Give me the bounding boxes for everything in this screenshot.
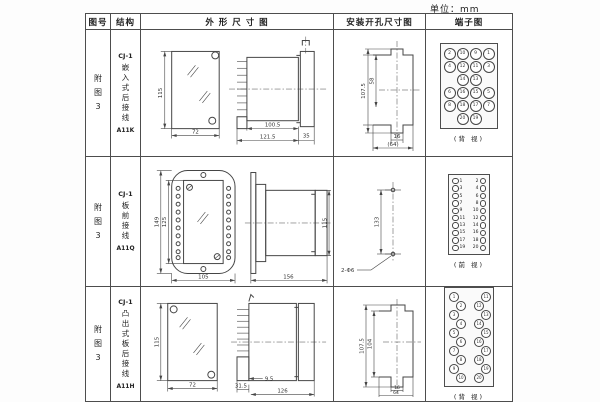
dim-mount-v1: 133 (374, 216, 380, 227)
terminal: 1516 (451, 229, 487, 236)
terminal: 5 (449, 328, 459, 338)
terminal: 7 (483, 100, 495, 112)
row-a11h: 附图3 CJ-1 凸出式板后接线 A11H 115 72 (86, 287, 513, 402)
terminal (480, 245, 487, 252)
char: 板 (122, 339, 130, 349)
terminal: 13 (460, 223, 469, 228)
terminal: 1314 (451, 222, 487, 229)
terminal-caption: (前 视) (454, 259, 484, 269)
terminal: 818177 (443, 99, 495, 112)
terminal: 13 (481, 310, 491, 320)
terminal: 6 (456, 337, 466, 347)
char: 后 (122, 349, 130, 359)
structure-chars: 凸出式板后接线 (122, 309, 130, 379)
char: 附 (86, 72, 110, 86)
terminal: 3 (460, 186, 469, 191)
char: 入 (122, 73, 130, 83)
dim-mount-b2: 64 (393, 390, 399, 396)
terminal: 1234567891011121314151617181920 (447, 291, 491, 383)
terminal: 9 (449, 364, 459, 374)
terminal-diagram: 2109141211314136161558181772019 (背 视) (426, 43, 512, 143)
terminal: 12 (457, 61, 469, 73)
terminal (452, 215, 459, 222)
terminal (480, 215, 487, 222)
char: 图 (86, 337, 110, 351)
terminal: 12 (474, 301, 484, 311)
terminal (480, 237, 487, 244)
page: { "page": { "unit_label": "单位：mm" }, "ta… (0, 0, 600, 400)
dim-side-l: 156 (283, 274, 294, 280)
structure-model: CJ-1 (118, 189, 132, 199)
terminal (480, 193, 487, 200)
terminal-cell-a11q: 1234567891011121314151617181920 (前 视) (426, 157, 513, 287)
mount-svg-a11h: 107.5 104 16 64 (335, 291, 425, 398)
outline-svg-a11h: 115 72 9.5 (142, 291, 333, 398)
terminal: 8 (444, 100, 456, 112)
terminal: 1920 (451, 244, 487, 251)
terminal (480, 178, 487, 185)
dim-front-w: 72 (189, 382, 196, 388)
terminal: 19 (470, 113, 482, 125)
terminal: 16 (457, 87, 469, 99)
terminal-diagram: 1234567891011121314151617181920 (背 视) (426, 287, 512, 401)
terminal: 15 (481, 328, 491, 338)
terminal: 14 (470, 223, 479, 228)
terminal: 1 (449, 292, 459, 302)
dim-mount-b1: 16 (393, 134, 400, 140)
outline-svg-a11q: 149 125 105 156 (142, 158, 333, 286)
terminal (480, 208, 487, 215)
dim-d2: 121.5 (259, 134, 275, 140)
terminal: 10 (470, 208, 479, 213)
char: 3 (86, 229, 110, 243)
terminal: 4 (456, 319, 466, 329)
terminal: 6 (444, 87, 456, 99)
char: 接 (122, 359, 130, 369)
terminal: 18 (457, 100, 469, 112)
terminal: 20 (457, 113, 469, 125)
terminal: 4 (444, 61, 456, 73)
char: 式 (122, 329, 130, 339)
terminal (452, 185, 459, 192)
spec-table: 图号 结构 外 形 尺 寸 图 安装开孔尺寸图 端子图 附图3 CJ-1 嵌入式… (85, 13, 513, 402)
dim-d3: 126 (277, 388, 288, 394)
terminal: 11 (460, 216, 469, 221)
terminal: 17 (470, 100, 482, 112)
terminal: 16 (470, 230, 479, 235)
mount-drawing-a11k: 107.5 58 16 (64) (334, 30, 426, 157)
terminal (452, 208, 459, 215)
header-mount-dims: 安装开孔尺寸图 (334, 14, 426, 30)
char: 附 (86, 201, 110, 215)
terminal (480, 185, 487, 192)
terminal: 34 (451, 185, 487, 192)
terminal: 616155 (443, 86, 495, 99)
terminal: 21091 (443, 47, 495, 60)
header-terminal: 端子图 (426, 14, 513, 30)
char: 附 (86, 323, 110, 337)
structure-chars: 板前接线 (122, 201, 130, 241)
terminal: 8 (470, 201, 479, 206)
row-a11q: 附图3 CJ-1 板前接线 A11Q (86, 157, 513, 287)
terminal: 910 (451, 207, 487, 214)
fig-no-a11q: 附图3 (86, 157, 111, 287)
terminal: 16 (474, 337, 484, 347)
terminal (452, 245, 459, 252)
terminal-grid: 2109141211314136161558181772019 (440, 43, 498, 129)
dim-d1: 100.5 (264, 122, 280, 128)
structure-stack: CJ-1 嵌入式后接线 A11K (111, 51, 140, 136)
char: 式 (122, 83, 130, 93)
terminal: 12 (451, 178, 487, 185)
mount-drawing-a11q: 133 2-Φ6 (334, 157, 426, 287)
terminal: 1 (483, 48, 495, 60)
hole-spec-label: 2-Φ6 (341, 268, 355, 274)
terminal: 7 (449, 346, 459, 356)
terminal: 11121314151617181920 (474, 292, 489, 382)
dim-side-h: 115 (322, 217, 328, 227)
char: 凸 (122, 309, 130, 319)
terminal: 11 (470, 61, 482, 73)
terminal: 1718 (451, 237, 487, 244)
terminal (452, 230, 459, 237)
terminal: 2 (444, 48, 456, 60)
row-a11k: 附图3 CJ-1 嵌入式后接线 A11K 115 (86, 30, 513, 157)
char: 图 (86, 86, 110, 100)
terminal-diagram: 1234567891011121314151617181920 (前 视) (426, 174, 512, 270)
char: 接 (122, 221, 130, 231)
outline-drawing-a11h: 115 72 9.5 (141, 287, 334, 402)
terminal: 3 (449, 310, 459, 320)
mount-drawing-a11h: 107.5 104 16 64 (334, 287, 426, 402)
dim-front-h: 115 (154, 336, 160, 346)
dim-mount-v1: 107.5 (359, 337, 365, 353)
terminal-grid: 1234567891011121314151617181920 (444, 287, 494, 387)
terminal: 10 (456, 373, 466, 383)
terminal: 13 (470, 74, 482, 86)
terminal-caption: (背 视) (454, 133, 484, 143)
terminal (452, 200, 459, 207)
header-outline-dims: 外 形 尺 寸 图 (141, 14, 334, 30)
terminal (452, 193, 459, 200)
dim-mount-v1: 107.5 (361, 82, 367, 98)
char: 3 (86, 100, 110, 114)
structure-model: CJ-1 (118, 51, 132, 61)
terminal: 18 (470, 238, 479, 243)
terminal: 20 (470, 245, 479, 250)
dim-d1: 31.5 (234, 383, 246, 389)
terminal: 17 (460, 238, 469, 243)
terminal: 11 (481, 292, 491, 302)
terminal (452, 178, 459, 185)
terminal: 10 (457, 48, 469, 60)
terminal: 1413 (443, 73, 495, 86)
char: 线 (122, 113, 130, 123)
terminal (480, 230, 487, 237)
terminal (452, 222, 459, 229)
mount-svg-a11q: 133 2-Φ6 (335, 158, 425, 286)
dim-mount-v2: 58 (369, 77, 375, 84)
terminal: 78 (451, 200, 487, 207)
terminal: 412113 (443, 60, 495, 73)
char: 接 (122, 103, 130, 113)
char: 嵌 (122, 63, 130, 73)
terminal: 14 (474, 319, 484, 329)
terminal: 14 (457, 74, 469, 86)
char: 图 (86, 215, 110, 229)
mount-svg-a11k: 107.5 58 16 (64) (335, 31, 425, 156)
terminal: 4 (470, 186, 479, 191)
terminal: 17 (481, 346, 491, 356)
dim-front-h: 115 (157, 87, 163, 97)
char: 线 (122, 231, 130, 241)
terminal: 2019 (443, 112, 495, 125)
terminal: 12 (470, 216, 479, 221)
terminal: 9 (460, 208, 469, 213)
terminal: 3 (483, 61, 495, 73)
dim-w: 105 (198, 274, 208, 280)
terminal: 7 (460, 201, 469, 206)
header-row: 图号 结构 外 形 尺 寸 图 安装开孔尺寸图 端子图 (86, 14, 513, 30)
structure-stack: CJ-1 凸出式板后接线 A11H (111, 297, 140, 392)
terminal: 19 (460, 245, 469, 250)
structure-code: A11Q (116, 244, 134, 254)
terminal (452, 237, 459, 244)
outline-svg-a11k: 115 72 (142, 31, 333, 156)
dim-h1: 149 (154, 216, 160, 227)
terminal-grid: 1234567891011121314151617181920 (448, 174, 490, 256)
dim-d3: 35 (302, 133, 309, 139)
terminal: 20 (474, 373, 484, 383)
header-structure: 结构 (111, 14, 141, 30)
terminal (480, 222, 487, 229)
terminal: 9 (470, 48, 482, 60)
terminal: 56 (451, 192, 487, 199)
terminal: 8 (456, 355, 466, 365)
terminal: 5 (460, 194, 469, 199)
char: 板 (122, 201, 130, 211)
outline-drawing-a11q: 149 125 105 156 (141, 157, 334, 287)
terminal: 6 (470, 194, 479, 199)
terminal: 18 (474, 355, 484, 365)
terminal (480, 200, 487, 207)
terminal: 1 (460, 179, 469, 184)
dim-d2: 9.5 (264, 376, 273, 382)
terminal: 15 (460, 230, 469, 235)
structure-model: CJ-1 (118, 297, 132, 307)
structure-code: A11K (117, 126, 135, 136)
terminal-cell-a11h: 1234567891011121314151617181920 (背 视) (426, 287, 513, 402)
dim-mount-b2: (64) (387, 142, 398, 148)
terminal: 15 (470, 87, 482, 99)
structure-code: A11H (116, 382, 134, 392)
dim-mount-v2: 104 (367, 338, 373, 349)
terminal: 12345678910 (449, 292, 464, 382)
fig-no-a11k: 附图3 (86, 30, 111, 157)
terminal: 2 (456, 301, 466, 311)
terminal-cell-a11k: 2109141211314136161558181772019 (背 视) (426, 30, 513, 157)
outline-drawing-a11k: 115 72 (141, 30, 334, 157)
char: 出 (122, 319, 130, 329)
char: 3 (86, 351, 110, 365)
char: 线 (122, 369, 130, 379)
terminal: 5 (483, 87, 495, 99)
char: 前 (122, 211, 130, 221)
terminal: 1112 (451, 215, 487, 222)
fig-no-a11h: 附图3 (86, 287, 111, 402)
terminal: 2 (470, 179, 479, 184)
structure-a11q: CJ-1 板前接线 A11Q (111, 157, 141, 287)
dim-front-w: 72 (191, 129, 198, 135)
dim-h2: 125 (162, 216, 168, 226)
header-fig-no: 图号 (86, 14, 111, 30)
terminal: 19 (481, 364, 491, 374)
structure-a11k: CJ-1 嵌入式后接线 A11K (111, 30, 141, 157)
structure-stack: CJ-1 板前接线 A11Q (111, 189, 140, 254)
structure-a11h: CJ-1 凸出式板后接线 A11H (111, 287, 141, 402)
structure-chars: 嵌入式后接线 (122, 63, 130, 123)
char: 后 (122, 93, 130, 103)
